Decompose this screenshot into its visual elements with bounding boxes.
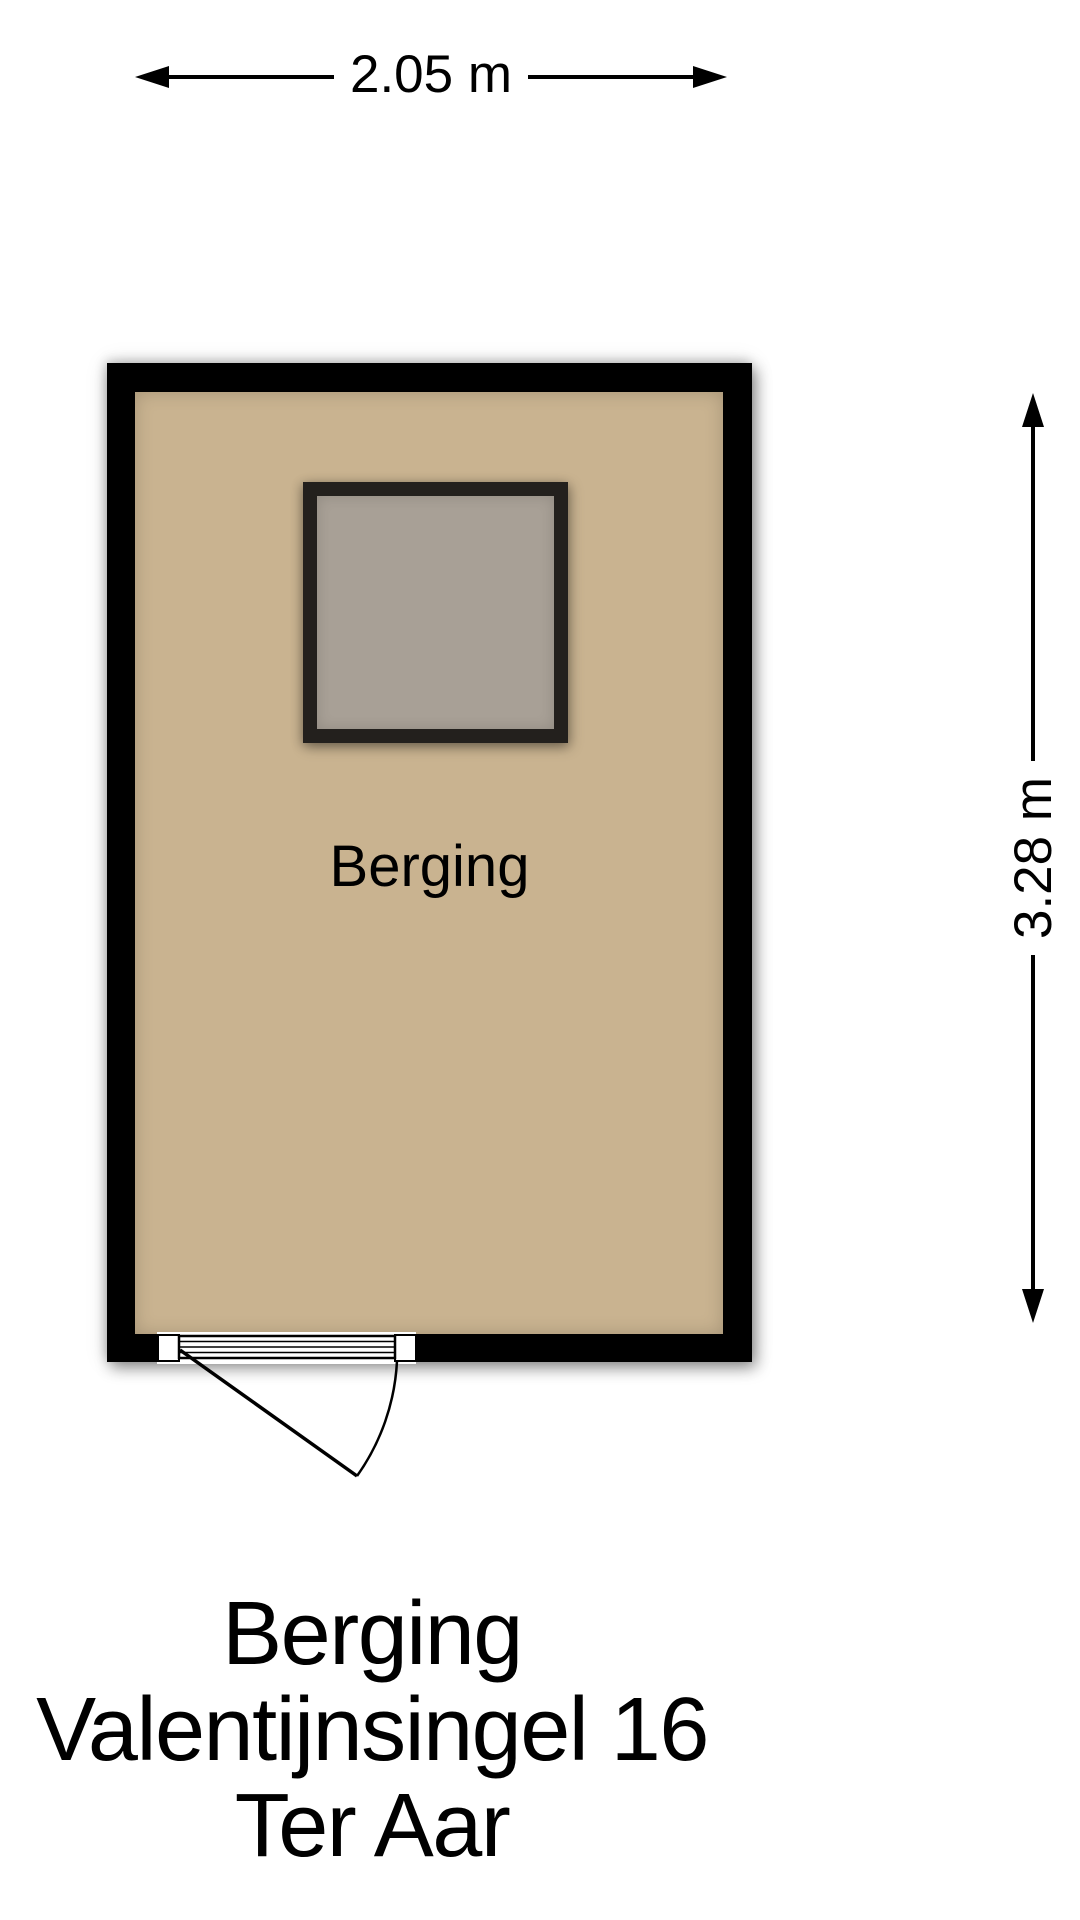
dimension-line <box>1031 427 1035 761</box>
dimension-line <box>528 75 693 79</box>
storage-object <box>303 482 568 743</box>
dimension-line <box>1031 955 1035 1289</box>
plan-caption: Berging Valentijnsingel 16 Ter Aar <box>0 1586 744 1874</box>
dimension-width: 2.05 m <box>135 55 727 99</box>
caption-street-address: Valentijnsingel 16 <box>0 1682 744 1778</box>
dimension-width-label: 2.05 m <box>334 48 528 101</box>
storage-object-surface <box>317 496 554 729</box>
arrowhead-left-icon <box>135 66 169 88</box>
caption-city: Ter Aar <box>0 1778 744 1874</box>
arrowhead-up-icon <box>1022 393 1044 427</box>
dimension-height-label: 3.28 m <box>1007 761 1060 955</box>
floorplan-canvas: 2.05 m Berging 3.28 m Berging Valentijns… <box>0 0 1080 1920</box>
door-leaf <box>180 1350 357 1476</box>
arrowhead-down-icon <box>1022 1289 1044 1323</box>
dimension-line <box>169 75 334 79</box>
dimension-height: 3.28 m <box>1003 393 1063 1323</box>
caption-room-name: Berging <box>0 1586 744 1682</box>
door-swing-arc <box>357 1361 397 1476</box>
room-label: Berging <box>107 835 752 899</box>
arrowhead-right-icon <box>693 66 727 88</box>
